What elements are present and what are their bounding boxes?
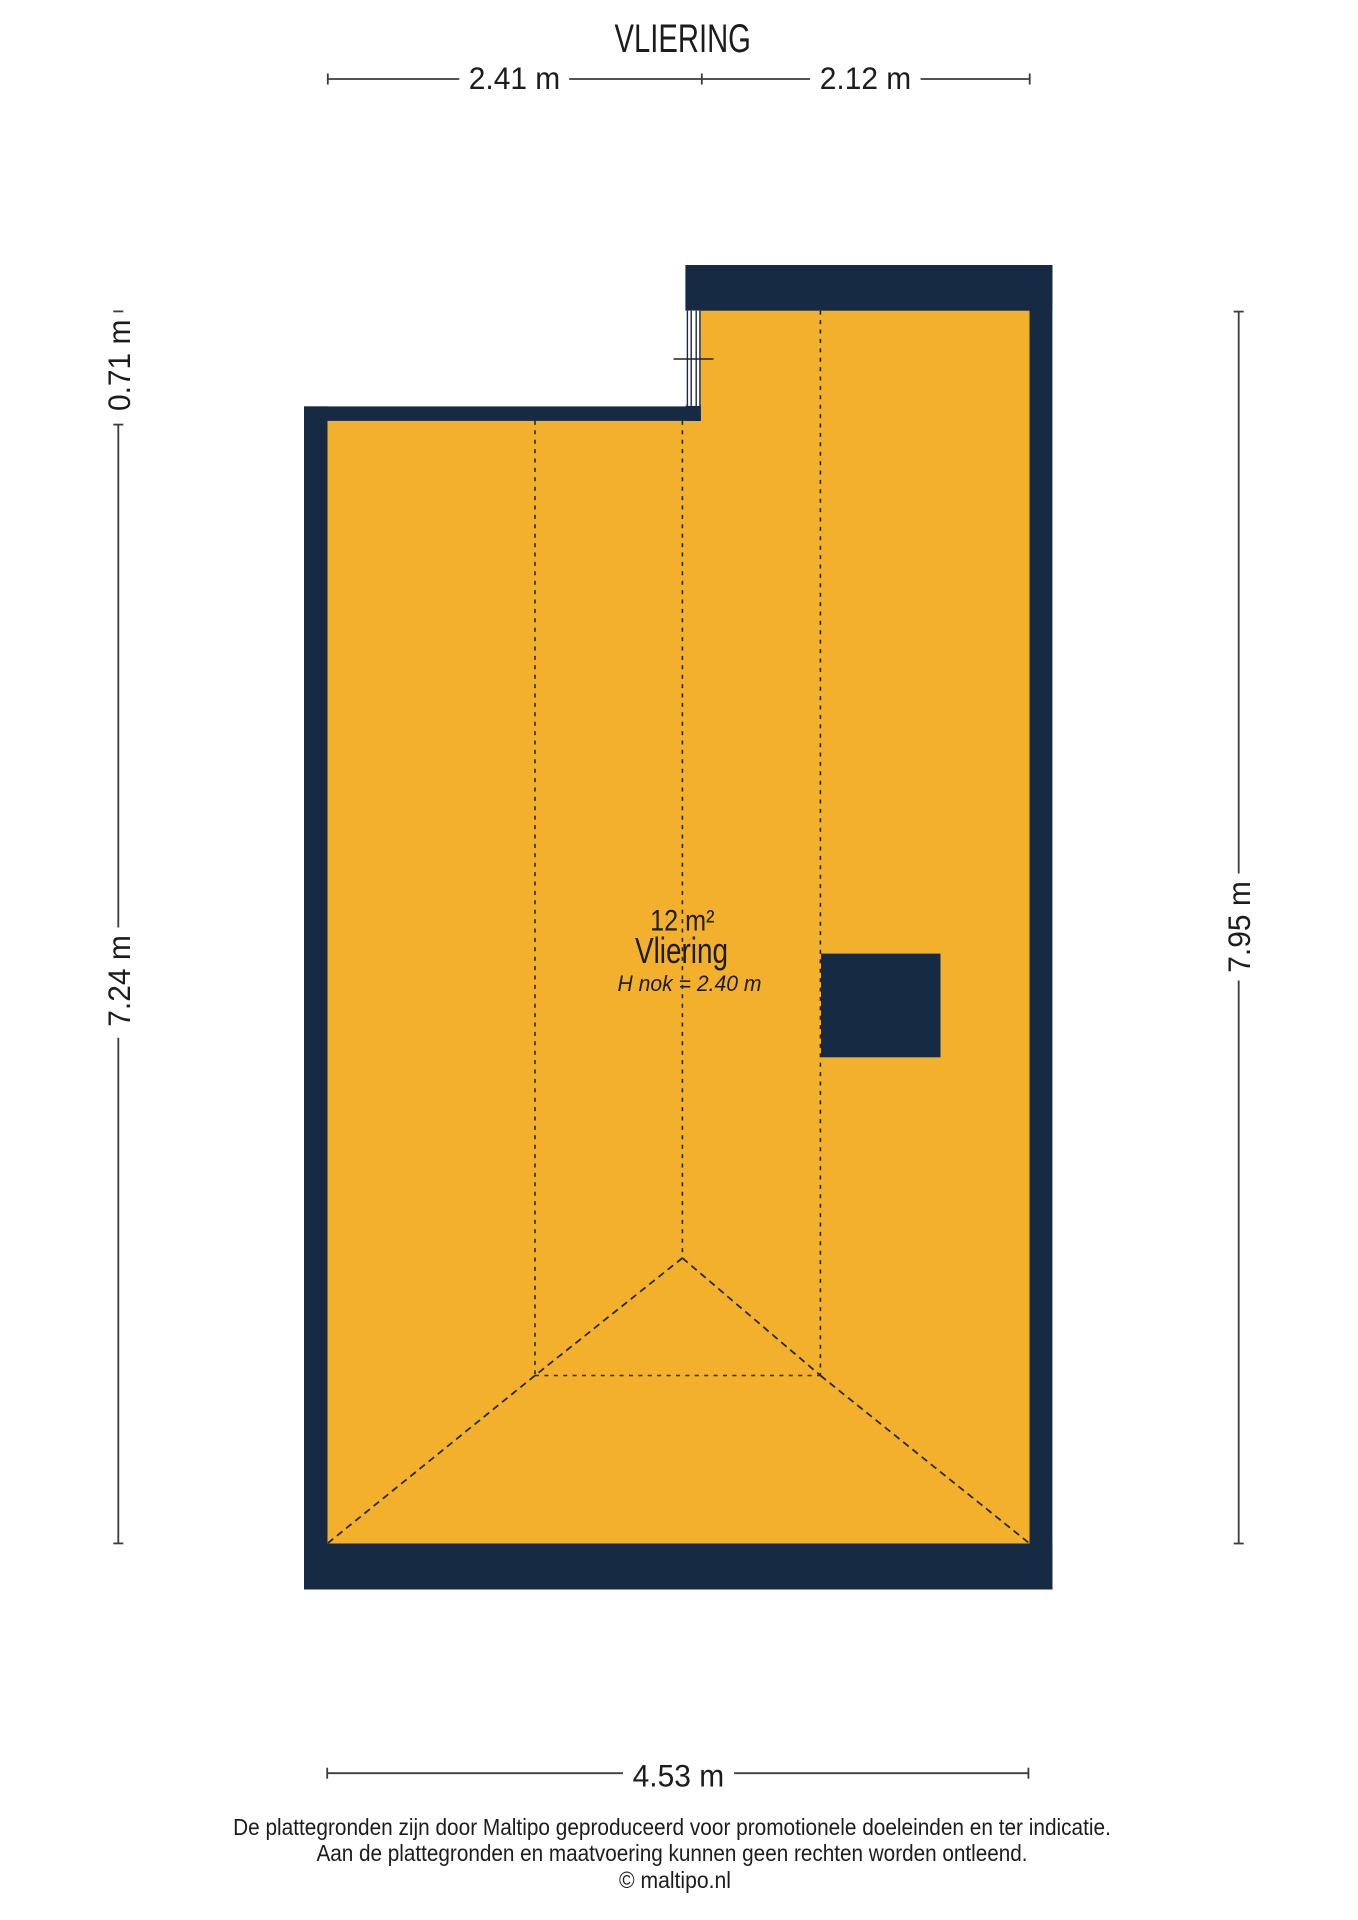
- svg-text:4.53 m: 4.53 m: [633, 1758, 724, 1794]
- svg-text:0.71 m: 0.71 m: [101, 320, 137, 411]
- svg-text:Aan de plattegronden en maatvo: Aan de plattegronden en maatvoering kunn…: [316, 1840, 1027, 1866]
- svg-text:VLIERING: VLIERING: [615, 18, 751, 61]
- svg-text:7.24 m: 7.24 m: [101, 935, 137, 1026]
- svg-text:2.41 m: 2.41 m: [469, 60, 560, 96]
- svg-text:2.12 m: 2.12 m: [820, 60, 911, 96]
- svg-text:H nok = 2.40 m: H nok = 2.40 m: [618, 970, 762, 996]
- svg-text:Vliering: Vliering: [635, 931, 728, 971]
- svg-text:7.95 m: 7.95 m: [1221, 881, 1257, 972]
- svg-text:De plattegronden zijn door Mal: De plattegronden zijn door Maltipo gepro…: [233, 1814, 1111, 1840]
- svg-text:© maltipo.nl: © maltipo.nl: [619, 1867, 731, 1893]
